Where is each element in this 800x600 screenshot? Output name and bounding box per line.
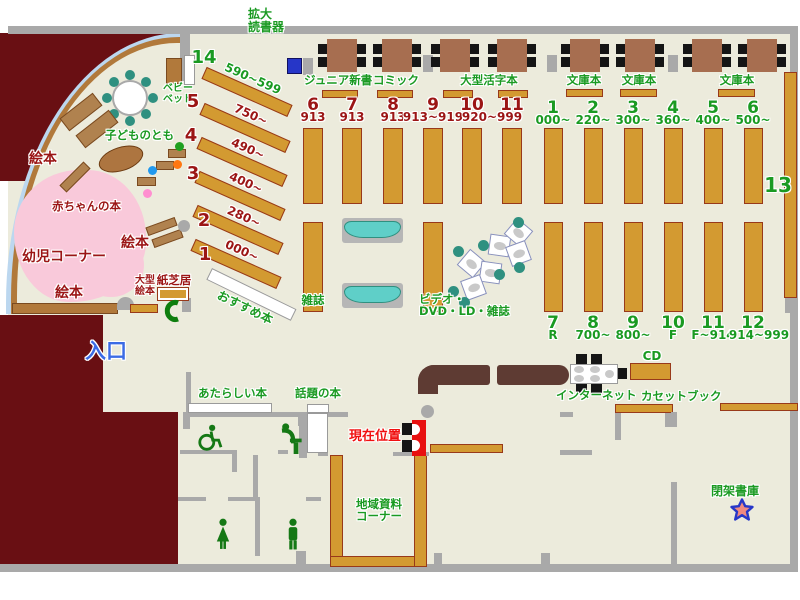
cassette-books-label: カセットブック — [641, 390, 713, 402]
bunko-label-b: 文庫本 — [617, 74, 661, 86]
carrel-chair — [514, 262, 525, 273]
label-shelf — [566, 89, 603, 97]
stool-pink — [143, 189, 152, 198]
topic-books-shelf — [307, 404, 329, 413]
shelf-column — [303, 128, 323, 204]
pillar — [668, 55, 678, 72]
solid-block-bottom-left-upper — [0, 315, 103, 414]
shelf-column — [704, 128, 723, 204]
shelf-column — [624, 222, 643, 312]
library-floor-map: ベビーベッド 子どものとも 絵本 赤ちゃんの本 幼児コーナー 絵本 絵本 大型絵… — [0, 0, 800, 600]
diagonal-no-5: 5 — [183, 92, 203, 111]
baby-bed-shelf — [166, 58, 182, 84]
shelf-column — [342, 128, 362, 204]
rb-range-12: 914~999 — [723, 329, 795, 342]
diagonal-no-1: 1 — [195, 245, 215, 264]
reading-table-group — [683, 39, 731, 77]
carrel-chair — [478, 240, 489, 251]
pillar — [178, 220, 190, 232]
mid-range-10-11: 920~999 — [457, 111, 527, 124]
wall-segment — [560, 450, 592, 455]
shelf-column — [383, 128, 403, 204]
junior-shinsho-label: ジュニア新書 — [304, 74, 372, 86]
wall-segment — [785, 298, 798, 313]
baby-books-label: 赤ちゃんの本 — [52, 200, 120, 212]
internet-chair — [591, 354, 602, 364]
large-print-label: 大型活字本 — [454, 74, 524, 86]
magazines-label: 雑誌 — [293, 294, 333, 306]
picture-books-label-mid: 絵本 — [117, 236, 153, 251]
reading-table-group — [373, 39, 421, 77]
solid-block-bottom-left-lower — [0, 412, 178, 564]
shelf-column — [664, 222, 683, 312]
kids-right-wall-stub — [182, 298, 191, 312]
sofa-cushion — [344, 221, 401, 238]
shelf-by-marker — [430, 444, 503, 453]
picture-books-label-bottom: 絵本 — [51, 286, 87, 301]
infant-corner-label: 幼児コーナー — [22, 250, 106, 265]
shelf-column — [462, 128, 482, 204]
label-shelf — [718, 89, 755, 97]
reading-table-group — [431, 39, 479, 77]
shelf-column — [744, 222, 763, 312]
cassette-shelf — [615, 404, 673, 413]
diagonal-no-3: 3 — [183, 164, 203, 183]
kids-chair — [141, 109, 151, 119]
comic-label: コミック — [373, 74, 417, 86]
local-corner-shelf-left — [330, 455, 343, 567]
magnifier-label: 拡大読書器 — [248, 8, 304, 34]
wall-segment — [541, 553, 550, 565]
wall-segment — [306, 497, 321, 501]
toilet-woman-icon — [213, 518, 233, 550]
shelf-column — [502, 128, 522, 204]
local-corner-label: 地域資料コーナー — [348, 498, 410, 523]
shelf-column — [664, 128, 683, 204]
wall-segment — [560, 412, 573, 417]
wheelchair-icon — [196, 424, 224, 452]
shelf-column — [584, 128, 603, 204]
av-label: ビデオ・DVD・LD・雑誌 — [419, 293, 499, 318]
kids-chair — [102, 93, 112, 103]
stool-blue — [148, 166, 157, 175]
pillar — [547, 55, 557, 72]
wall-segment — [178, 497, 206, 501]
counter-capsule — [497, 365, 569, 385]
new-books-shelf — [188, 403, 272, 413]
diagonal-no-14: 14 — [190, 48, 218, 67]
wall-segment — [434, 553, 442, 565]
top-wall — [8, 26, 798, 34]
wall-segment — [671, 412, 677, 427]
kids-chair — [148, 93, 158, 103]
internet-chair — [576, 354, 587, 364]
topic-books-stand — [307, 413, 328, 453]
local-corner-shelf-bottom — [330, 556, 427, 567]
shelf-column — [744, 128, 763, 204]
kids-chair — [125, 70, 135, 80]
diagonal-no-2: 2 — [194, 211, 214, 230]
cd-shelf — [630, 363, 671, 380]
step-shelf — [156, 161, 174, 170]
kids-chair — [125, 116, 135, 126]
sofa-cushion — [344, 286, 401, 303]
magnifier-device — [287, 58, 302, 74]
current-position-label: 現在位置 — [348, 430, 402, 444]
kids-chair — [109, 77, 119, 87]
shelf-column — [544, 128, 563, 204]
shelf-13-label: 13 — [764, 175, 792, 197]
wall-segment — [615, 413, 621, 440]
wall-segment — [232, 450, 237, 472]
closed-stacks-star-icon — [730, 498, 754, 522]
closed-stacks-label: 閉架書庫 — [707, 485, 763, 498]
wall-segment — [296, 551, 306, 564]
reading-table-group — [488, 39, 536, 77]
bunko-label-a: 文庫本 — [562, 74, 606, 86]
kodomo-no-tomo-label: 子どものとも — [105, 129, 167, 141]
rt-range-6: 500~ — [723, 114, 783, 127]
shelf-column — [544, 222, 563, 312]
picture-books-label-top: 絵本 — [25, 152, 61, 167]
south-east-shelf — [720, 403, 798, 411]
local-corner-shelf-right — [414, 455, 427, 567]
stool-orange — [173, 160, 182, 169]
bunko-label-c: 文庫本 — [715, 74, 759, 86]
shelf-column — [624, 128, 643, 204]
label-shelf — [620, 89, 657, 97]
toilet-man-icon — [283, 518, 303, 550]
new-books-label: あたらしい本 — [198, 387, 266, 399]
carrel-chair — [453, 246, 464, 257]
reading-table-group — [561, 39, 609, 77]
pillar — [421, 405, 434, 418]
cd-label: CD — [638, 350, 666, 363]
wall-segment — [255, 501, 260, 556]
internet-table — [570, 364, 618, 384]
marker-chair — [402, 423, 412, 435]
kamishibai-label: 紙芝居 — [156, 274, 192, 286]
kids-chair — [141, 77, 151, 87]
topic-books-label: 話題の本 — [293, 387, 343, 399]
public-phone-icon — [163, 299, 181, 323]
large-picture-books-shelf — [130, 304, 158, 313]
reading-table-group — [318, 39, 366, 77]
kids-bottom-wall — [12, 303, 118, 314]
shelf-column — [584, 222, 603, 312]
wall-segment — [671, 482, 677, 565]
reading-table-group — [738, 39, 786, 77]
wall-segment — [183, 412, 190, 429]
shelf-column — [423, 128, 443, 204]
wall-segment — [253, 455, 258, 501]
carrel-chair — [513, 217, 524, 228]
diagonal-no-4: 4 — [181, 126, 201, 145]
marker-chair — [402, 440, 412, 452]
carrel-chair — [494, 269, 505, 280]
internet-label: インターネット — [556, 389, 626, 401]
reading-table-group — [616, 39, 664, 77]
entrance-label: 入口 — [84, 340, 128, 363]
shelf-column — [704, 222, 723, 312]
step-shelf — [137, 177, 156, 186]
